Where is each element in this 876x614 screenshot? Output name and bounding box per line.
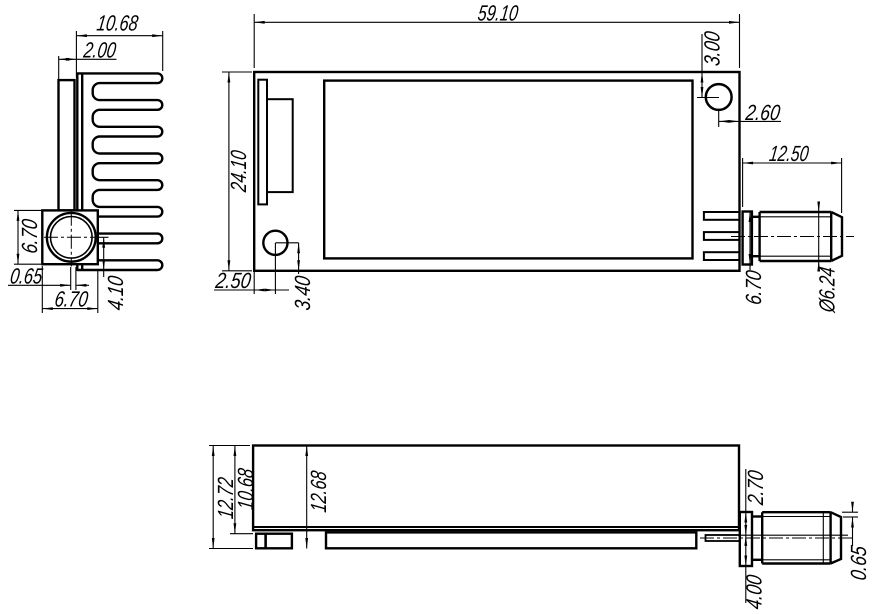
svg-text:0.65: 0.65 bbox=[9, 264, 45, 289]
svg-text:10.68: 10.68 bbox=[95, 11, 140, 36]
svg-text:59.10: 59.10 bbox=[476, 0, 520, 25]
svg-text:3.40: 3.40 bbox=[290, 274, 315, 312]
svg-text:2.70: 2.70 bbox=[743, 468, 768, 507]
svg-text:2.60: 2.60 bbox=[744, 100, 783, 125]
svg-text:6.70: 6.70 bbox=[17, 217, 42, 255]
svg-text:24.10: 24.10 bbox=[226, 148, 251, 194]
svg-text:0.65: 0.65 bbox=[846, 544, 871, 582]
svg-text:12.68: 12.68 bbox=[306, 469, 331, 514]
svg-text:6.70: 6.70 bbox=[741, 268, 766, 306]
svg-text:12.50: 12.50 bbox=[768, 141, 811, 166]
svg-text:4.10: 4.10 bbox=[103, 274, 128, 312]
svg-text:2.50: 2.50 bbox=[213, 268, 253, 293]
svg-text:Ø6.24: Ø6.24 bbox=[815, 265, 840, 314]
svg-text:4.00: 4.00 bbox=[742, 573, 767, 611]
svg-text:6.70: 6.70 bbox=[53, 287, 90, 312]
svg-text:2.00: 2.00 bbox=[81, 38, 118, 63]
svg-text:10.68: 10.68 bbox=[233, 466, 258, 511]
svg-text:3.00: 3.00 bbox=[700, 29, 725, 67]
